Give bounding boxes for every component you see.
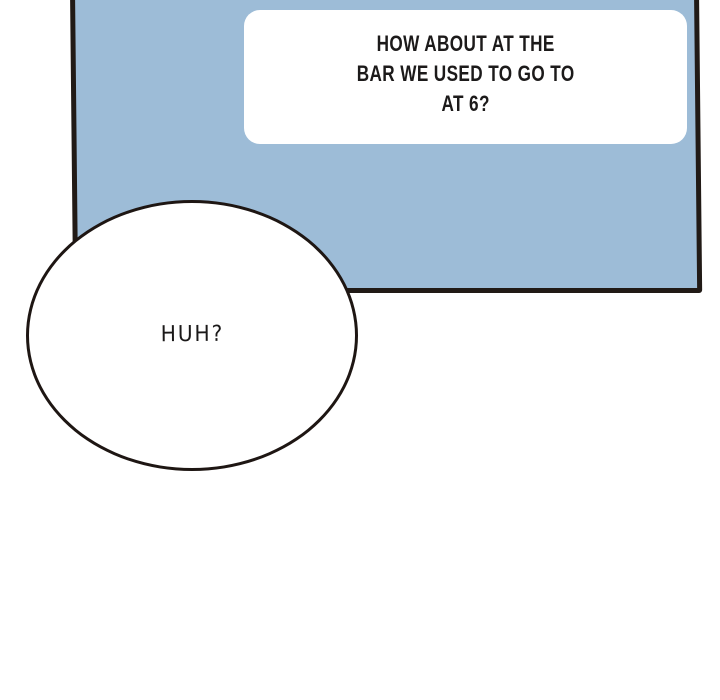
dialogue-line-1: HOW ABOUT AT THE	[357, 29, 575, 59]
dialogue-line-3: AT 6?	[357, 89, 575, 119]
reply-text: HUH?	[160, 322, 224, 350]
dialogue-text: HOW ABOUT AT THE BAR WE USED TO GO TO AT…	[357, 29, 575, 125]
dialogue-speech-bubble: HOW ABOUT AT THE BAR WE USED TO GO TO AT…	[244, 10, 687, 144]
reply-speech-bubble: HUH?	[26, 200, 358, 471]
dialogue-line-2: BAR WE USED TO GO TO	[357, 59, 575, 89]
comic-page: HOW ABOUT AT THE BAR WE USED TO GO TO AT…	[0, 0, 720, 700]
